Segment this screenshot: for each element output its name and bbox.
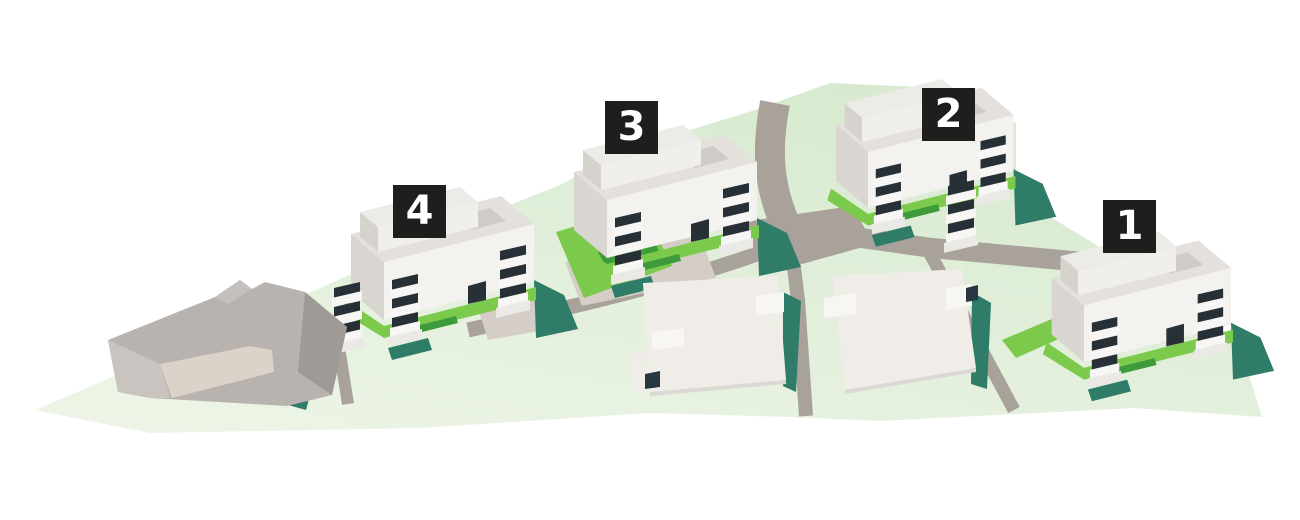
building-3-marker[interactable]: 3 [605, 101, 658, 154]
outbuilding-left [630, 276, 786, 396]
marker-number: 2 [935, 91, 963, 137]
site-plan-3d-rendering: 1 2 3 4 [0, 0, 1300, 520]
building-4-marker[interactable]: 4 [393, 185, 446, 238]
building-1-marker[interactable]: 1 [1103, 200, 1156, 253]
site-plan-stage: 1 2 3 4 [0, 0, 1300, 520]
marker-number: 1 [1116, 203, 1144, 249]
marker-number: 3 [618, 104, 646, 150]
marker-number: 4 [406, 188, 434, 234]
existing-building [108, 280, 347, 406]
outbuilding-right [824, 269, 978, 394]
building-2-marker[interactable]: 2 [922, 88, 975, 141]
